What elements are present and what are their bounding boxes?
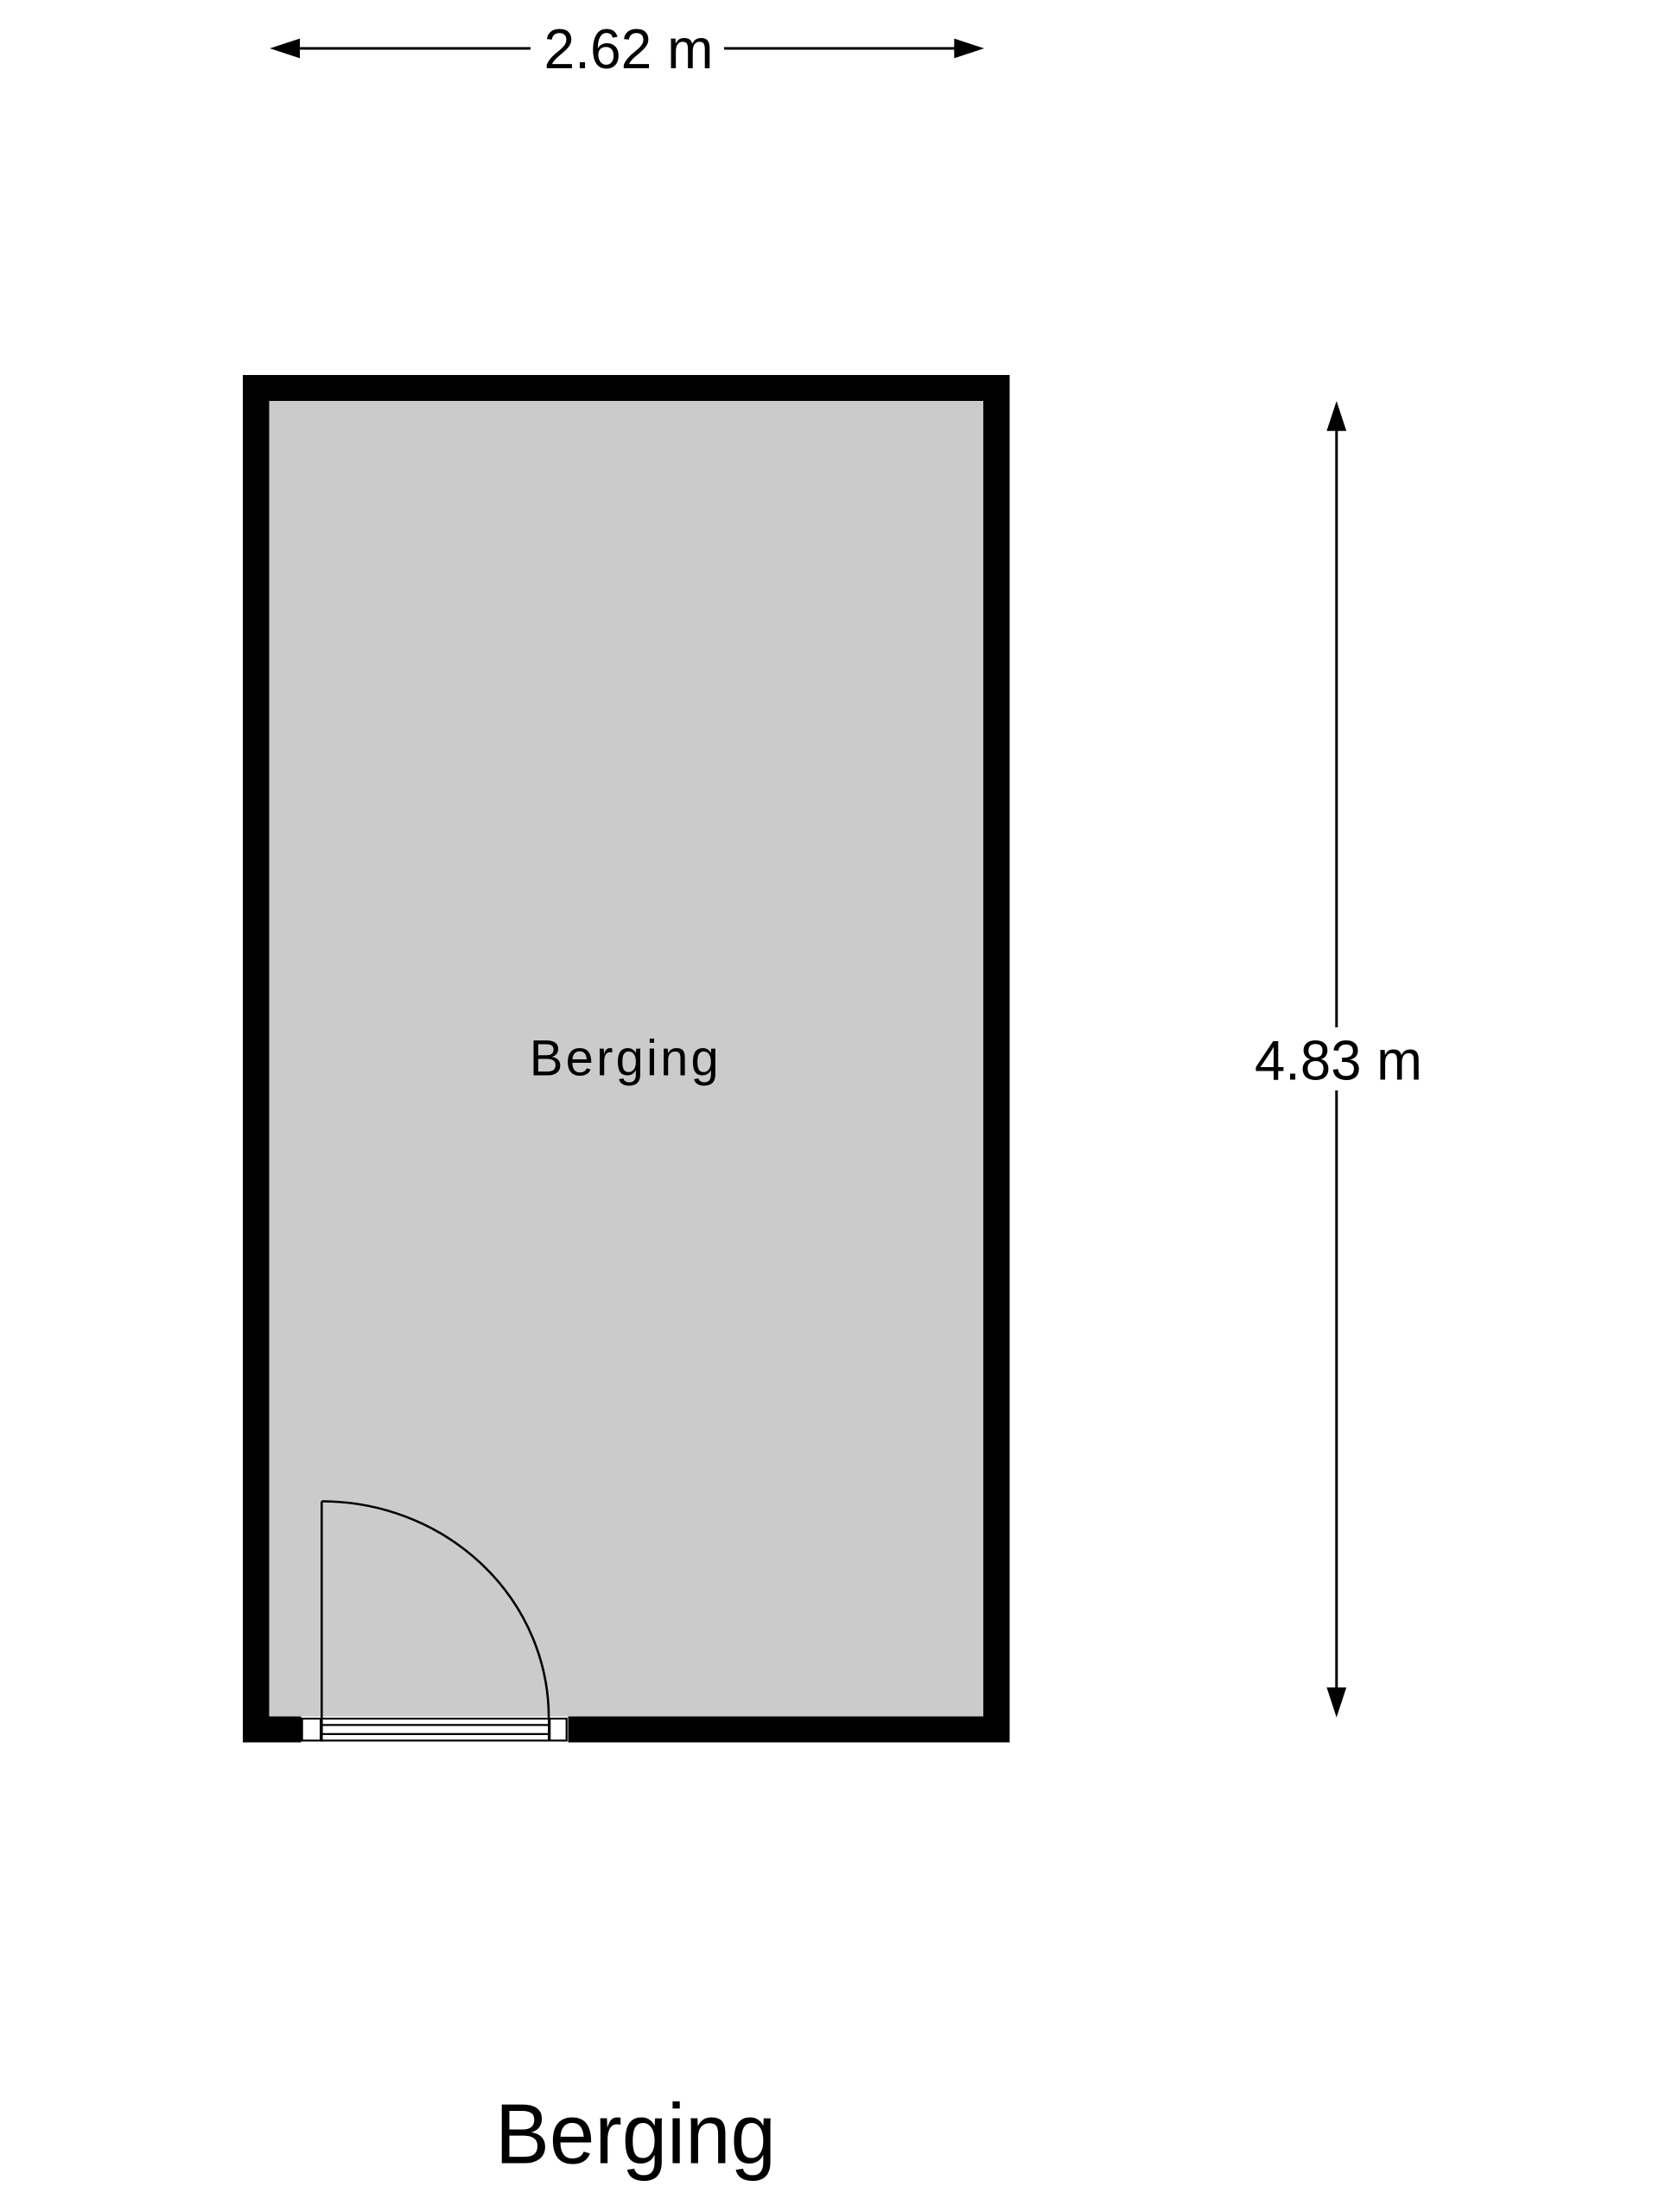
svg-text:Berging: Berging (530, 1031, 719, 1087)
svg-text:2.62 m: 2.62 m (544, 17, 714, 80)
svg-text:Berging: Berging (495, 2087, 776, 2182)
svg-text:4.83 m: 4.83 m (1255, 1029, 1422, 1092)
